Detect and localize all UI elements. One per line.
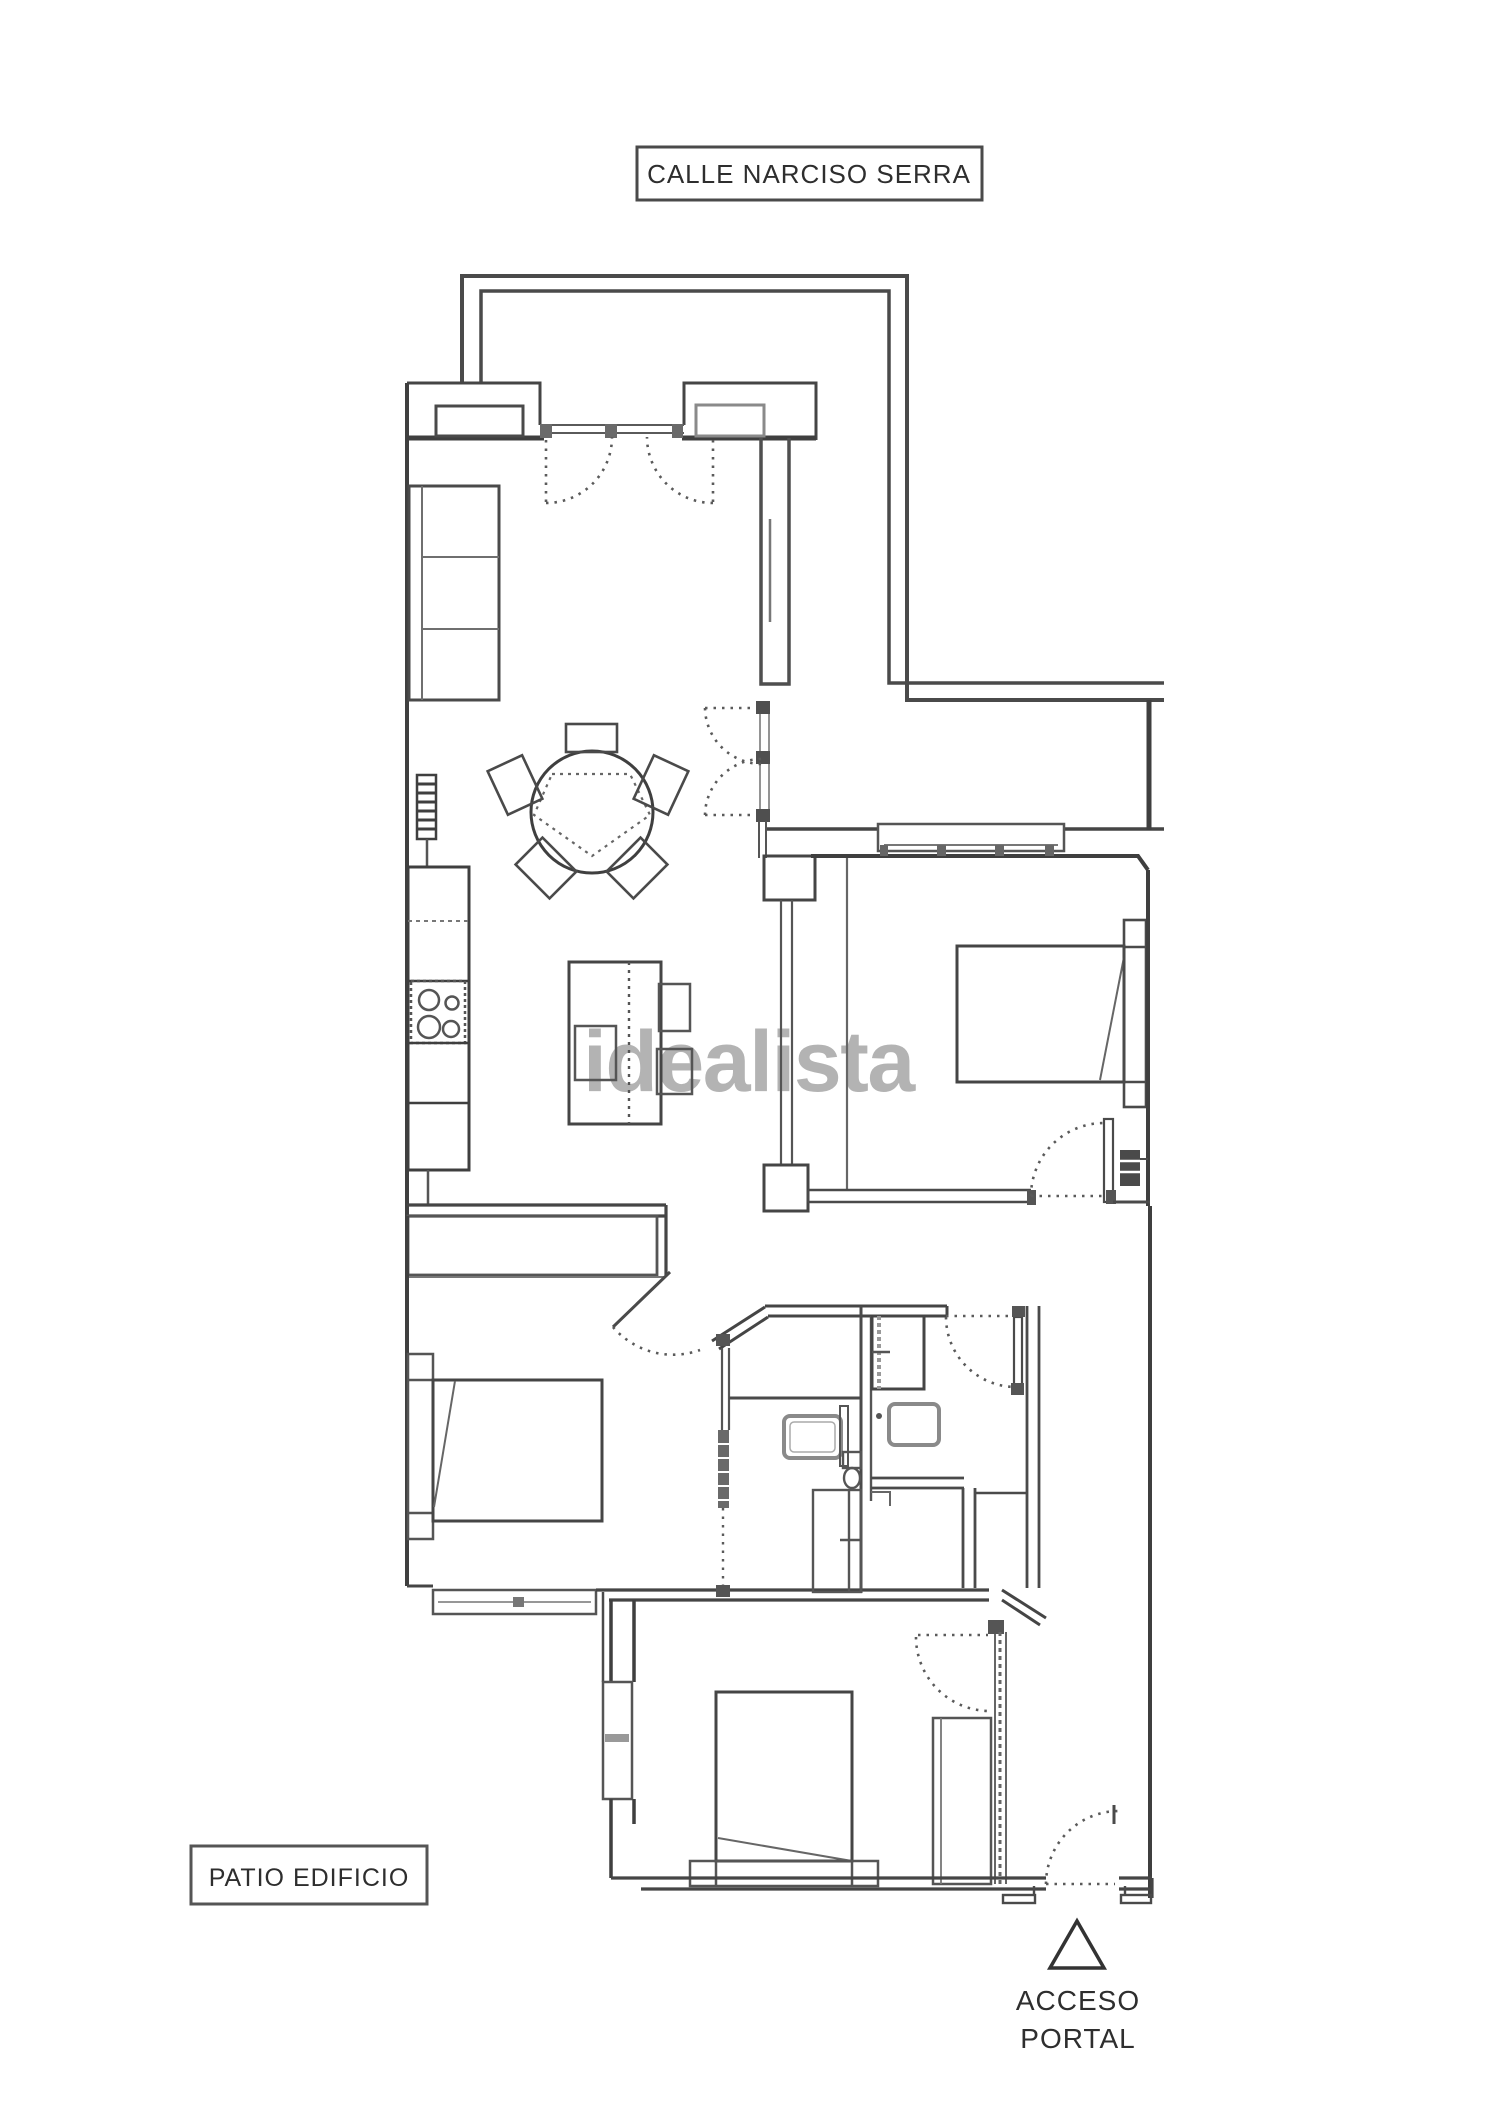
svg-text:CALLE NARCISO SERRA: CALLE NARCISO SERRA	[647, 159, 971, 189]
svg-text:PATIO EDIFICIO: PATIO EDIFICIO	[209, 1864, 410, 1892]
svg-text:ACCESO: ACCESO	[1016, 1985, 1140, 2016]
svg-text:idealista: idealista	[583, 1014, 916, 1110]
svg-text:PORTAL: PORTAL	[1020, 2023, 1135, 2054]
